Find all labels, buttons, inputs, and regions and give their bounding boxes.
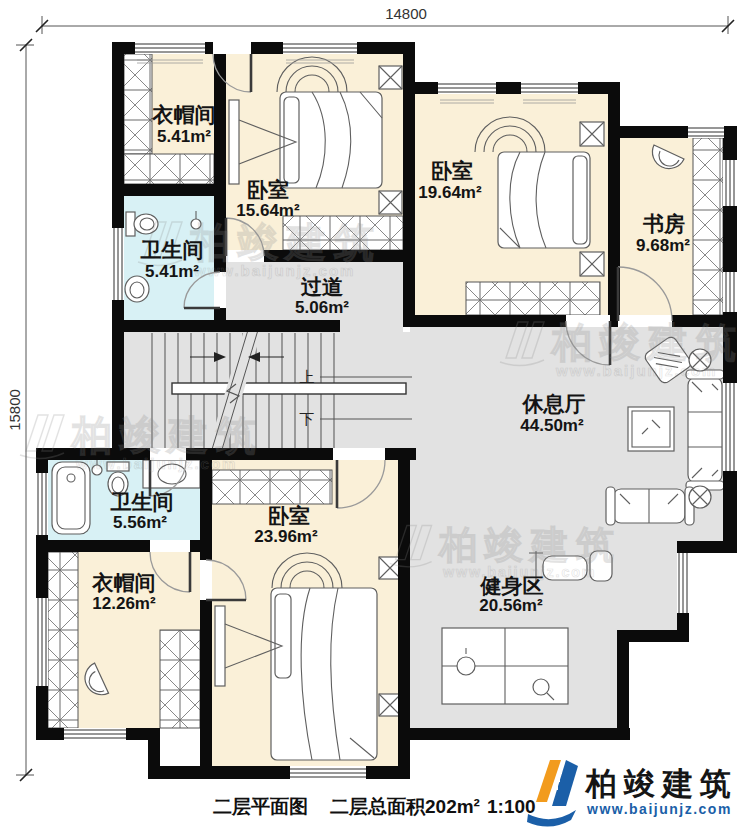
room-lounge-area: 44.50m²	[520, 416, 584, 435]
window-icon	[677, 553, 689, 613]
window-icon	[112, 228, 124, 300]
wardrobe-icon	[124, 154, 214, 184]
caption: 二层平面图 二层总面积202m² 1:100	[213, 796, 536, 817]
scale-label: 1:100	[487, 796, 536, 817]
window-icon	[135, 42, 205, 54]
window-icon	[36, 598, 48, 686]
room-cloakroom2-area: 12.26m²	[92, 594, 156, 613]
room-cloakroom1-name: 衣帽间	[152, 103, 216, 126]
room-study-name: 书房	[642, 212, 685, 235]
wardrobe-icon	[466, 282, 600, 315]
watermark-brand: 柏竣建筑	[550, 320, 744, 364]
coffee-table-icon	[628, 407, 674, 451]
room-cloakroom2-name: 衣帽间	[92, 571, 156, 594]
room-corridor-name: 过道	[300, 275, 344, 298]
room-corridor-area: 5.06m²	[295, 298, 349, 317]
room-study-area: 9.68m²	[636, 236, 690, 255]
dimension-top-value: 14800	[385, 5, 427, 22]
wardrobe-icon	[212, 470, 332, 504]
dimension-left: 15800	[6, 39, 34, 781]
window-icon	[521, 82, 578, 94]
brand-logo: 柏竣建筑 www.baijunjz.com	[527, 760, 738, 827]
watermark-url: www.baijunjz.com	[75, 455, 237, 472]
sofa-3seat-icon	[688, 377, 722, 483]
wardrobe-icon	[160, 630, 200, 728]
brand-logo-url: www.baijunjz.com	[586, 801, 732, 817]
room-lounge-name: 休息厅	[522, 392, 586, 415]
room-bedroom2-name: 卧室	[431, 159, 473, 182]
stair-handrail	[172, 383, 406, 394]
room-gym-name: 健身区	[480, 574, 544, 597]
watermark-brand: 柏竣建筑	[437, 524, 621, 566]
window-icon	[723, 383, 737, 471]
plan-title: 二层平面图	[213, 796, 308, 817]
dimension-top: 14800	[36, 5, 734, 34]
watermark-brand: 柏竣建筑	[70, 413, 264, 457]
stair-up-label: 上	[300, 368, 315, 385]
room-bedroom3-name: 卧室	[268, 504, 310, 527]
stair-down-label: 下	[300, 410, 315, 427]
window-icon	[283, 42, 357, 54]
window-icon	[688, 126, 724, 138]
room-bedroom2-area: 19.64m²	[418, 183, 482, 202]
floor-plan-page: 上 下	[0, 0, 750, 834]
room-bathroom1-area: 5.41m²	[145, 262, 199, 281]
dimension-left-value: 15800	[6, 389, 23, 431]
watermark-url: www.baijunjz.com	[555, 362, 717, 379]
window-icon	[64, 728, 126, 740]
room-bathroom2-area: 5.56m²	[113, 513, 167, 532]
room-bathroom2-name: 卫生间	[110, 490, 174, 513]
room-bedroom1-area: 15.64m²	[236, 201, 300, 220]
brand-logo-name: 柏竣建筑	[584, 766, 738, 801]
room-bathroom1-name: 卫生间	[140, 238, 204, 261]
window-icon	[723, 272, 737, 312]
window-icon	[36, 473, 48, 535]
room-bedroom3-area: 23.96m²	[254, 527, 318, 546]
room-gym-area: 20.56m²	[479, 596, 543, 615]
room-bedroom1-name: 卧室	[247, 178, 289, 201]
window-icon	[290, 766, 366, 779]
total-area: 二层总面积202m²	[330, 796, 480, 817]
wardrobe-icon	[48, 552, 78, 728]
wardrobe-icon	[124, 54, 152, 154]
window-icon	[438, 82, 496, 94]
room-cloakroom1-area: 5.41m²	[157, 127, 211, 146]
window-icon	[723, 160, 737, 206]
bookshelf-icon	[693, 138, 723, 315]
floor-plan-svg: 上 下	[0, 0, 750, 834]
watermark-brand: 柏竣建筑	[188, 220, 382, 264]
